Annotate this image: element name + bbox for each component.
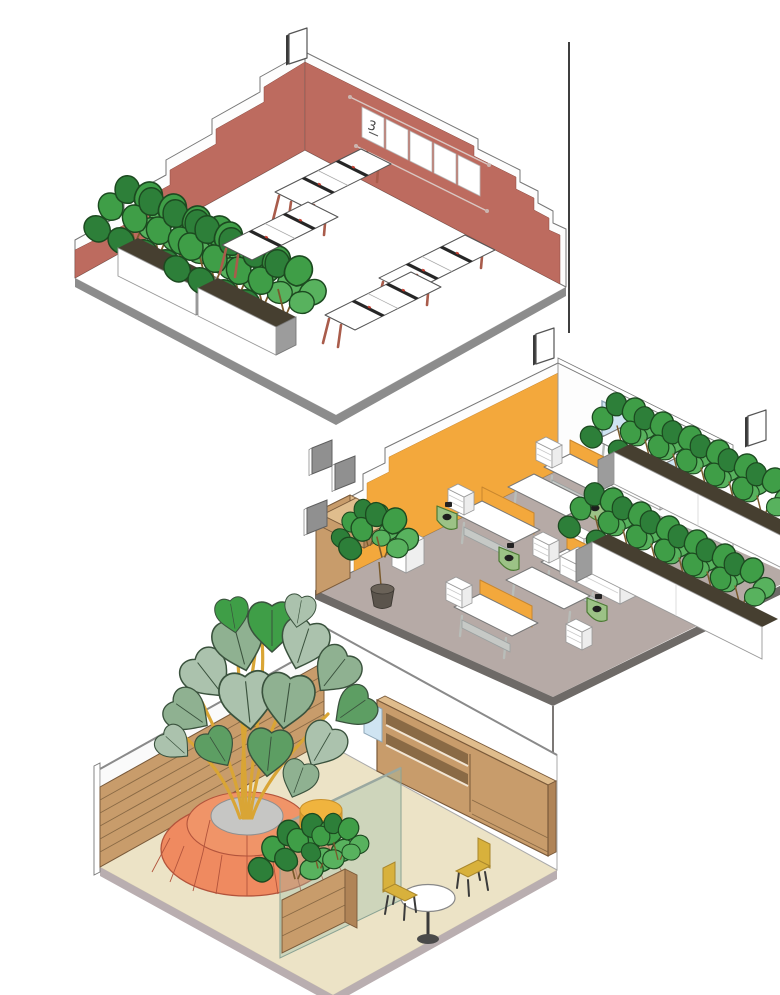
illustration-canvas: 3 [0, 0, 780, 995]
isometric-office-illustration: 3 [0, 0, 780, 995]
ceiling-sign-plate [745, 410, 766, 448]
room-top-office: 3 [75, 28, 566, 425]
ceiling-sign-plate [533, 328, 554, 366]
